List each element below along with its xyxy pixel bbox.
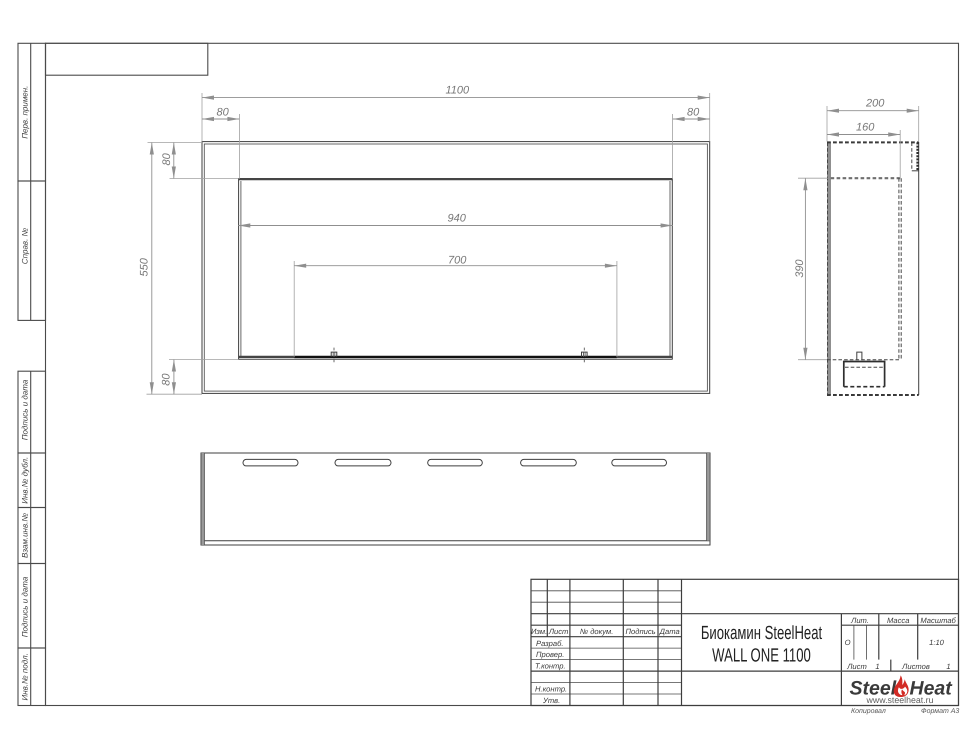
svg-text:Лист: Лист [548,627,569,636]
svg-text:Т.контр.: Т.контр. [535,662,566,671]
svg-text:Масштаб: Масштаб [920,616,956,625]
svg-text:Инв.№ дубл.: Инв.№ дубл. [20,457,29,504]
svg-text:WALL ONE 1100: WALL ONE 1100 [712,645,811,666]
svg-text:1: 1 [875,662,879,671]
svg-text:Масса: Масса [887,616,909,625]
svg-text:Провер.: Провер. [536,650,564,659]
svg-text:1100: 1100 [446,85,471,97]
svg-text:1: 1 [946,662,950,671]
svg-text:Подпись: Подпись [626,627,656,636]
svg-text:80: 80 [161,152,173,165]
svg-text:Утв.: Утв. [542,696,560,705]
svg-text:Перв. примен.: Перв. примен. [20,86,29,139]
svg-text:940: 940 [448,213,467,225]
svg-text:Н.контр.: Н.контр. [535,685,567,694]
svg-text:Взам.инв.№: Взам.инв.№ [20,513,29,558]
svg-text:160: 160 [856,121,875,133]
svg-text:Инв.№ подл.: Инв.№ подл. [20,653,29,700]
svg-text:Дата: Дата [659,627,680,636]
svg-text:1:10: 1:10 [929,638,945,647]
svg-text:Формат А3: Формат А3 [921,708,959,715]
svg-text:80: 80 [217,107,230,119]
svg-text:О: О [845,638,851,647]
svg-text:700: 700 [448,254,467,266]
svg-text:200: 200 [865,98,885,110]
svg-text:80: 80 [161,373,173,386]
svg-text:Разраб.: Разраб. [536,639,563,648]
svg-text:Подпись и дата: Подпись и дата [20,379,29,440]
svg-text:Лист: Лист [846,662,867,671]
svg-text:№ докум.: № докум. [580,627,613,636]
svg-text:Биокамин SteelHeat: Биокамин SteelHeat [701,623,823,644]
svg-text:www.steelheat.ru: www.steelheat.ru [866,695,934,705]
svg-text:Листов: Листов [901,662,930,671]
svg-text:80: 80 [687,107,700,119]
svg-text:Изм.: Изм. [531,627,547,636]
svg-text:Копировал: Копировал [851,708,886,715]
svg-text:390: 390 [794,259,806,278]
svg-text:Подпись и дата: Подпись и дата [20,576,29,637]
svg-text:550: 550 [139,257,151,276]
svg-text:Справ. №: Справ. № [20,227,29,264]
svg-text:Лит.: Лит. [850,616,869,625]
